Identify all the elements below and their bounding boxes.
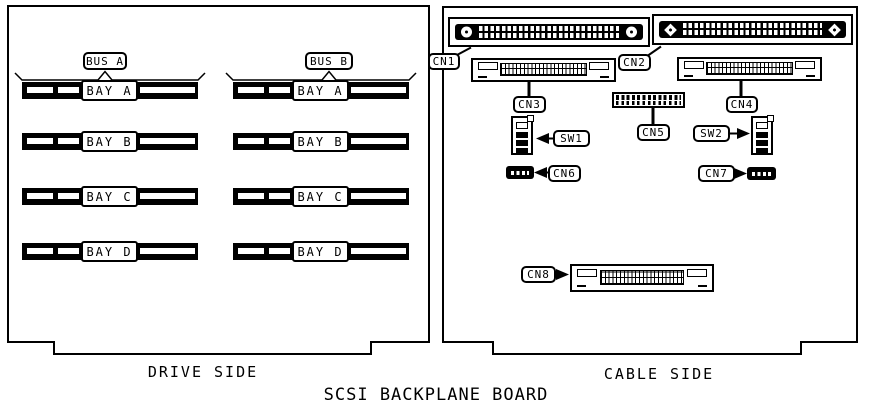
drive-slot bbox=[58, 193, 79, 199]
callout-cn1: CN1 bbox=[428, 53, 460, 70]
cn1-pin-bar bbox=[455, 24, 643, 40]
callout-cn4: CN4 bbox=[726, 96, 758, 113]
connector-end-tab bbox=[577, 269, 597, 277]
corner-dash bbox=[600, 76, 609, 78]
pin-grid bbox=[600, 270, 684, 285]
connector-end-tab bbox=[795, 61, 815, 69]
pin-row bbox=[479, 26, 619, 31]
drive-slot bbox=[269, 193, 290, 199]
drive-slot bbox=[351, 138, 406, 144]
drive-slot bbox=[140, 248, 195, 254]
drive-slot bbox=[238, 193, 264, 199]
callout-sw1: SW1 bbox=[553, 130, 590, 147]
diagram-title: SCSI BACKPLANE BOARD bbox=[269, 385, 603, 405]
switch-position bbox=[756, 148, 768, 154]
drive-slot bbox=[27, 138, 53, 144]
bay-label: BAY B bbox=[81, 131, 138, 152]
drive-slot bbox=[27, 248, 53, 254]
pin-row bbox=[479, 33, 619, 38]
callout-cn7: CN7 bbox=[698, 165, 735, 182]
drive-side-bottom-tab bbox=[53, 341, 372, 355]
pin-grid bbox=[500, 63, 587, 76]
bay-bar: BAY B bbox=[22, 133, 198, 150]
drive-slot bbox=[238, 87, 264, 93]
drive-slot bbox=[58, 87, 79, 93]
bay-label: BAY C bbox=[81, 186, 138, 207]
bay-label: BAY D bbox=[81, 241, 138, 262]
drive-slot bbox=[27, 193, 53, 199]
cable-side-caption: CABLE SIDE bbox=[549, 365, 769, 383]
bay-label: BAY B bbox=[292, 131, 349, 152]
bay-bar: BAY D bbox=[22, 243, 198, 260]
callout-cn8: CN8 bbox=[521, 266, 556, 283]
callout-bus-b: BUS B bbox=[305, 52, 353, 70]
cn2-pin-bar bbox=[659, 21, 846, 38]
pin-row bbox=[683, 23, 822, 28]
screw-post-icon bbox=[461, 27, 472, 38]
pin-row bbox=[616, 101, 681, 105]
corner-dash bbox=[577, 285, 586, 287]
bay-bar: BAY C bbox=[22, 188, 198, 205]
drive-slot bbox=[351, 87, 406, 93]
corner-dash bbox=[684, 75, 693, 77]
drive-slot bbox=[238, 138, 264, 144]
screw-post-icon bbox=[626, 27, 637, 38]
connector-cn4 bbox=[677, 57, 822, 81]
drive-slot bbox=[58, 248, 79, 254]
bay-label: BAY A bbox=[81, 80, 138, 101]
drive-slot bbox=[269, 138, 290, 144]
switch-position bbox=[756, 122, 768, 129]
drive-slot bbox=[238, 248, 264, 254]
bay-bar: BAY B bbox=[233, 133, 409, 150]
connector-cn2 bbox=[652, 14, 853, 45]
pin-row bbox=[683, 30, 822, 35]
connector-cn7 bbox=[747, 167, 776, 180]
drive-slot bbox=[140, 193, 195, 199]
connector-cn1 bbox=[448, 17, 650, 47]
bay-bar: BAY A bbox=[22, 82, 198, 99]
board-outline-drive-side bbox=[7, 5, 430, 343]
screw-post-icon bbox=[664, 23, 677, 36]
drive-slot bbox=[140, 138, 195, 144]
switch-position bbox=[756, 132, 768, 138]
bay-bar: BAY D bbox=[233, 243, 409, 260]
bay-bar: BAY C bbox=[233, 188, 409, 205]
drive-side-caption: DRIVE SIDE bbox=[98, 363, 308, 381]
drive-slot bbox=[140, 87, 195, 93]
pin-row bbox=[616, 95, 681, 100]
drive-slot bbox=[351, 248, 406, 254]
corner-dash bbox=[806, 75, 815, 77]
connector-end-tab bbox=[478, 62, 498, 70]
switch-position bbox=[516, 132, 528, 138]
corner-dash bbox=[698, 285, 707, 287]
switch-position bbox=[516, 148, 528, 154]
connector-end-tab bbox=[589, 62, 609, 70]
screw-post-icon bbox=[828, 23, 841, 36]
drive-slot bbox=[351, 193, 406, 199]
drive-slot bbox=[269, 248, 290, 254]
bay-label: BAY A bbox=[292, 80, 349, 101]
callout-cn2: CN2 bbox=[618, 54, 651, 71]
callout-bus-a: BUS A bbox=[83, 52, 127, 70]
pin-grid bbox=[706, 62, 793, 75]
connector-cn6 bbox=[506, 166, 534, 179]
callout-cn3: CN3 bbox=[513, 96, 546, 113]
dip-switch-tab bbox=[767, 115, 774, 122]
drive-slot bbox=[58, 138, 79, 144]
connector-cn8 bbox=[570, 264, 714, 292]
callout-sw2: SW2 bbox=[693, 125, 730, 142]
drive-slot bbox=[269, 87, 290, 93]
callout-cn6: CN6 bbox=[548, 165, 581, 182]
drive-slot bbox=[27, 87, 53, 93]
connector-end-tab bbox=[684, 61, 704, 69]
dip-switch-tab bbox=[527, 115, 534, 122]
callout-cn5: CN5 bbox=[637, 124, 670, 141]
connector-cn3 bbox=[471, 58, 616, 82]
switch-position bbox=[516, 122, 528, 129]
cable-side-bottom-tab bbox=[492, 341, 802, 355]
corner-dash bbox=[478, 76, 487, 78]
scsi-backplane-diagram: MH1991B BAY A BAY B BAY C BAY D BAY A bbox=[0, 0, 869, 416]
connector-cn5 bbox=[612, 92, 685, 108]
bay-label: BAY D bbox=[292, 241, 349, 262]
bay-label: BAY C bbox=[292, 186, 349, 207]
dip-switch-sw2 bbox=[751, 116, 773, 155]
switch-position bbox=[756, 140, 768, 146]
bay-bar: BAY A bbox=[233, 82, 409, 99]
pin-row bbox=[752, 172, 771, 176]
switch-position bbox=[516, 140, 528, 146]
dip-switch-sw1 bbox=[511, 116, 533, 155]
connector-end-tab bbox=[687, 269, 707, 277]
pin-row bbox=[511, 171, 529, 175]
